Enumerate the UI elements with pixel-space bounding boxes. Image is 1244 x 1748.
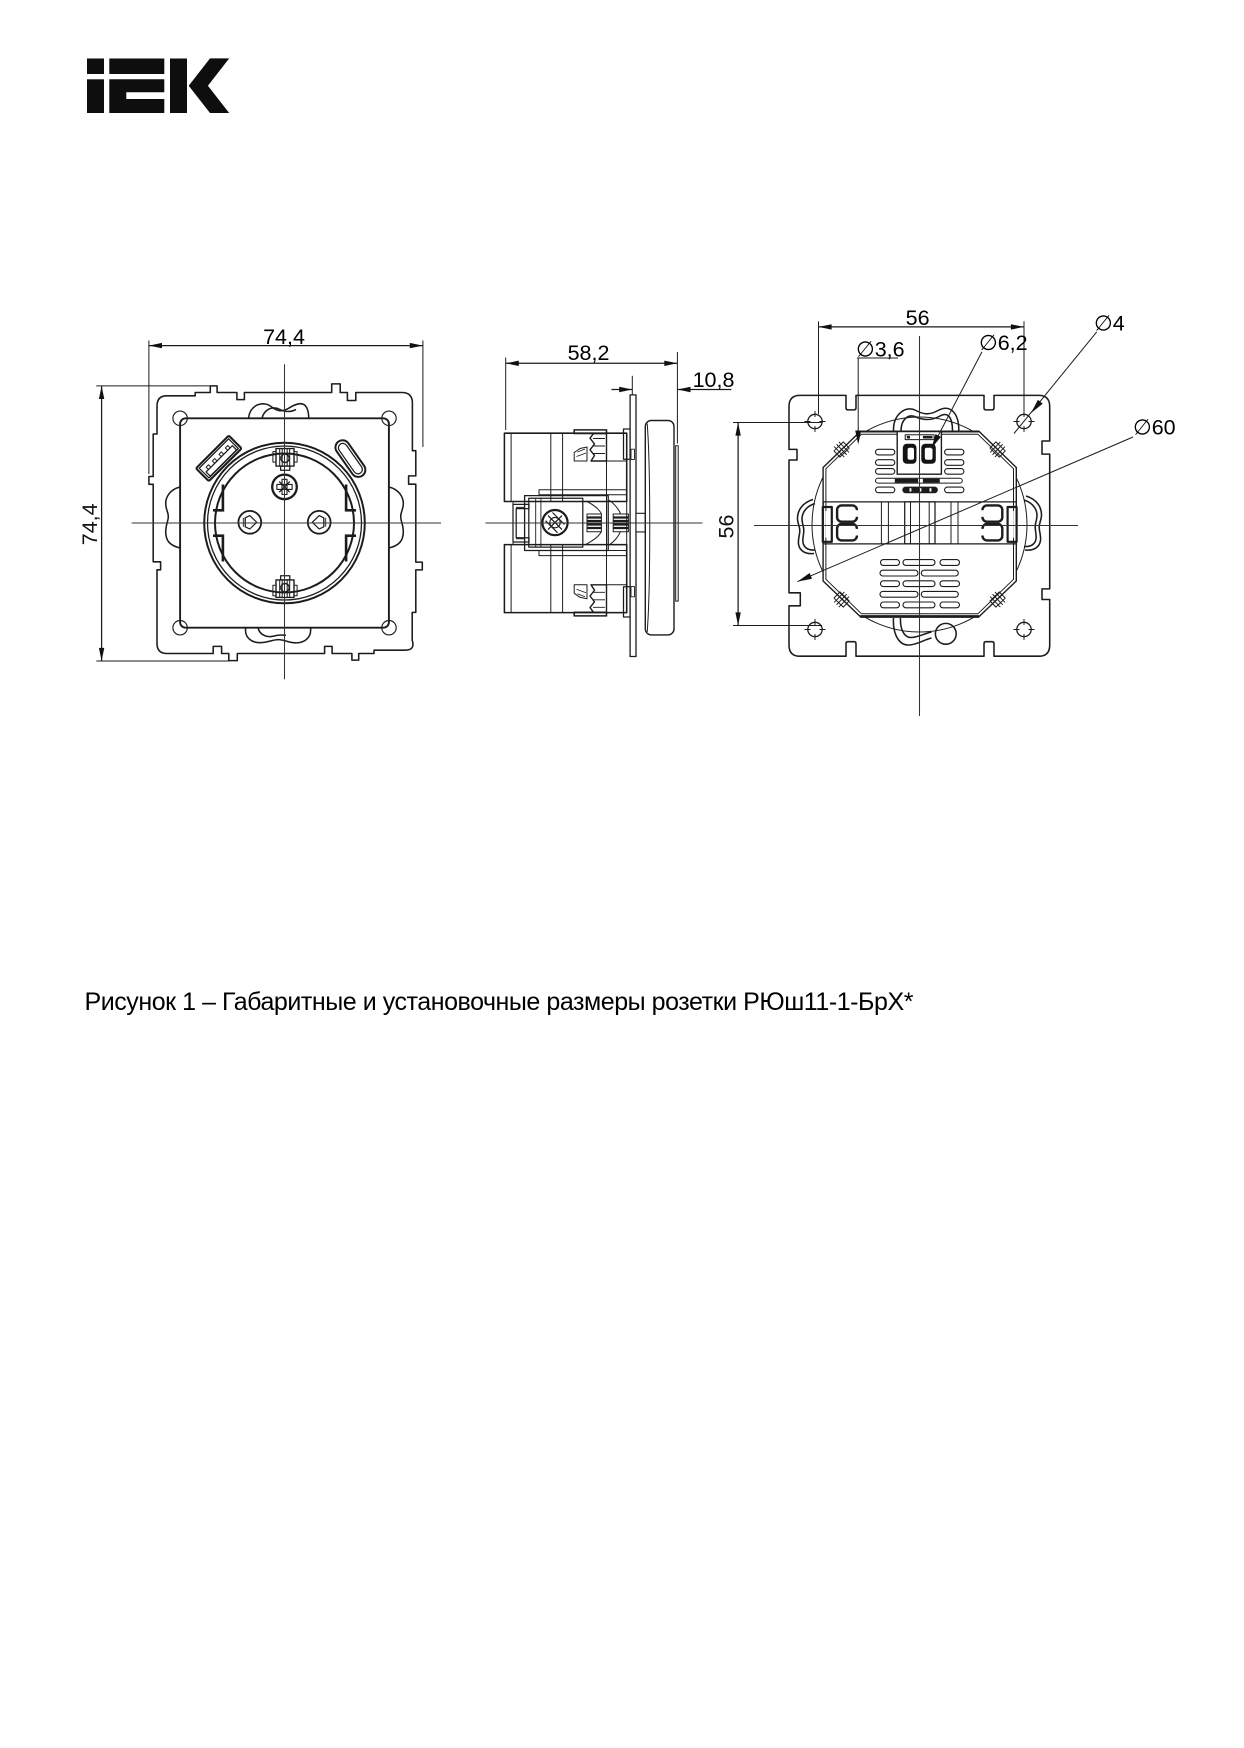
svg-text:∅4: ∅4 [1094,312,1125,336]
svg-text:74,4: 74,4 [263,325,305,349]
svg-text:Рисунок 1 – Габаритные и устан: Рисунок 1 – Габаритные и установочные ра… [85,988,914,1016]
svg-text:∅6,2: ∅6,2 [979,331,1028,355]
svg-text:∅3,6: ∅3,6 [856,338,905,362]
svg-text:10,8: 10,8 [693,368,735,392]
svg-text:74,4: 74,4 [78,503,102,545]
svg-text:58,2: 58,2 [568,341,610,365]
svg-text:∅60: ∅60 [1133,416,1176,440]
svg-text:56: 56 [906,306,930,330]
svg-text:56: 56 [715,515,739,539]
